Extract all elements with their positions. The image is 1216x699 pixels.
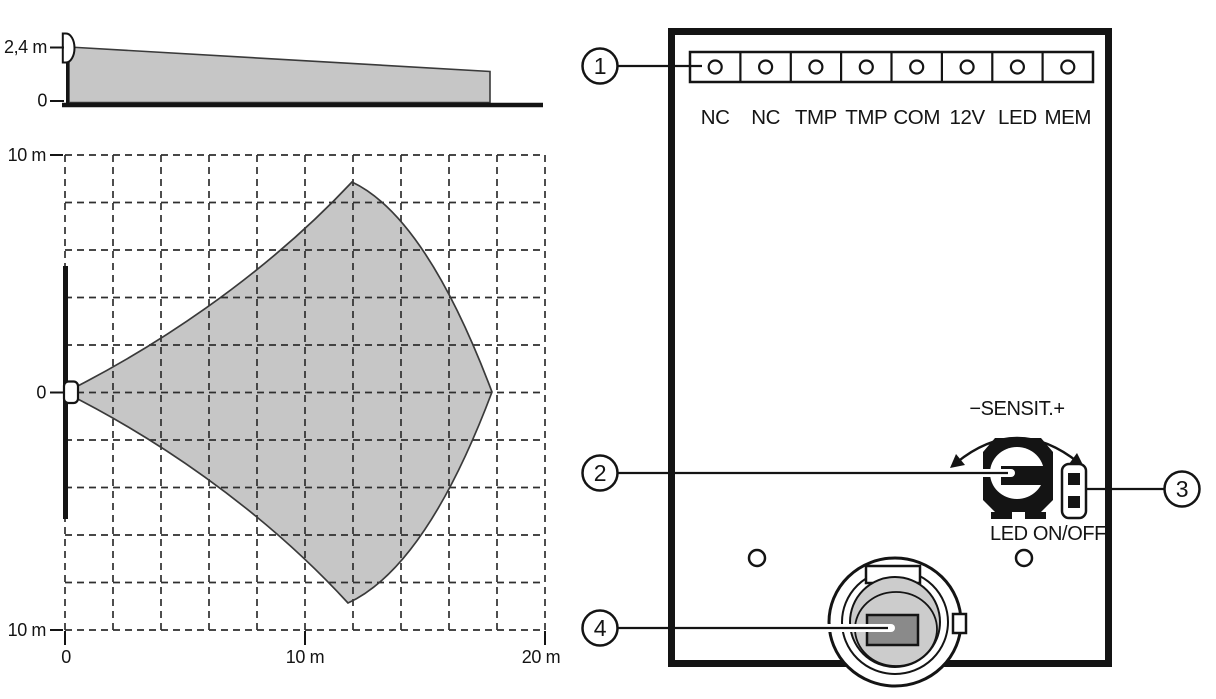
callout-4-number: 4 <box>594 615 607 641</box>
terminal-label-6: 12V <box>949 106 985 129</box>
mounting-hole-right <box>1016 550 1032 566</box>
figure-canvas: 2,4 m 0 <box>0 0 1216 699</box>
terminal-label-5: COM <box>893 106 940 129</box>
terminal-label-3: TMP <box>795 106 837 129</box>
top-xtick-20-label: 20 m <box>522 647 560 667</box>
led-jumper-label: LED ON/OFF <box>990 523 1106 545</box>
sensitivity-label: −SENSIT.+ <box>969 398 1064 420</box>
callout-1-number: 1 <box>594 53 606 79</box>
terminal-label-1: NC <box>701 106 730 129</box>
top-ytick-bottom-label: 10 m <box>8 620 46 640</box>
terminal-labels: NC NC TMP TMP COM 12V LED MEM <box>701 106 1091 129</box>
side-view-chart: 2,4 m 0 <box>4 34 543 111</box>
terminal-label-7: LED <box>998 106 1037 129</box>
mounting-hole-left <box>749 550 765 566</box>
top-ytick-top-label: 10 m <box>8 145 46 165</box>
jumper-outline <box>1062 464 1086 518</box>
top-xtick-10-label: 10 m <box>286 647 324 667</box>
terminal-label-4: TMP <box>845 106 887 129</box>
pcb-diagram: NC NC TMP TMP COM 12V LED MEM −SENSIT.+ <box>583 32 1200 687</box>
top-sensor-icon <box>64 382 78 404</box>
side-ytick-top-label: 2,4 m <box>4 37 47 57</box>
top-ytick-mid-label: 0 <box>36 383 46 403</box>
pot-foot-left <box>991 512 1012 519</box>
sensor-side-notch <box>953 614 966 633</box>
jumper-pin-top <box>1068 473 1080 485</box>
terminal-label-8: MEM <box>1044 106 1091 129</box>
top-xtick-0-label: 0 <box>61 647 71 667</box>
side-coverage-area <box>69 47 490 103</box>
diagram-svg: 2,4 m 0 <box>0 0 1216 699</box>
pot-foot-right <box>1025 512 1046 519</box>
top-view-chart: 10 m 0 10 m 0 10 m 20 m <box>8 145 561 667</box>
callout-2-number: 2 <box>594 460 606 486</box>
callout-3-number: 3 <box>1176 476 1188 502</box>
terminal-label-2: NC <box>751 106 780 129</box>
side-sensor-icon <box>63 34 75 63</box>
side-ytick-bottom-label: 0 <box>37 91 47 111</box>
jumper-pin-bottom <box>1068 496 1080 508</box>
